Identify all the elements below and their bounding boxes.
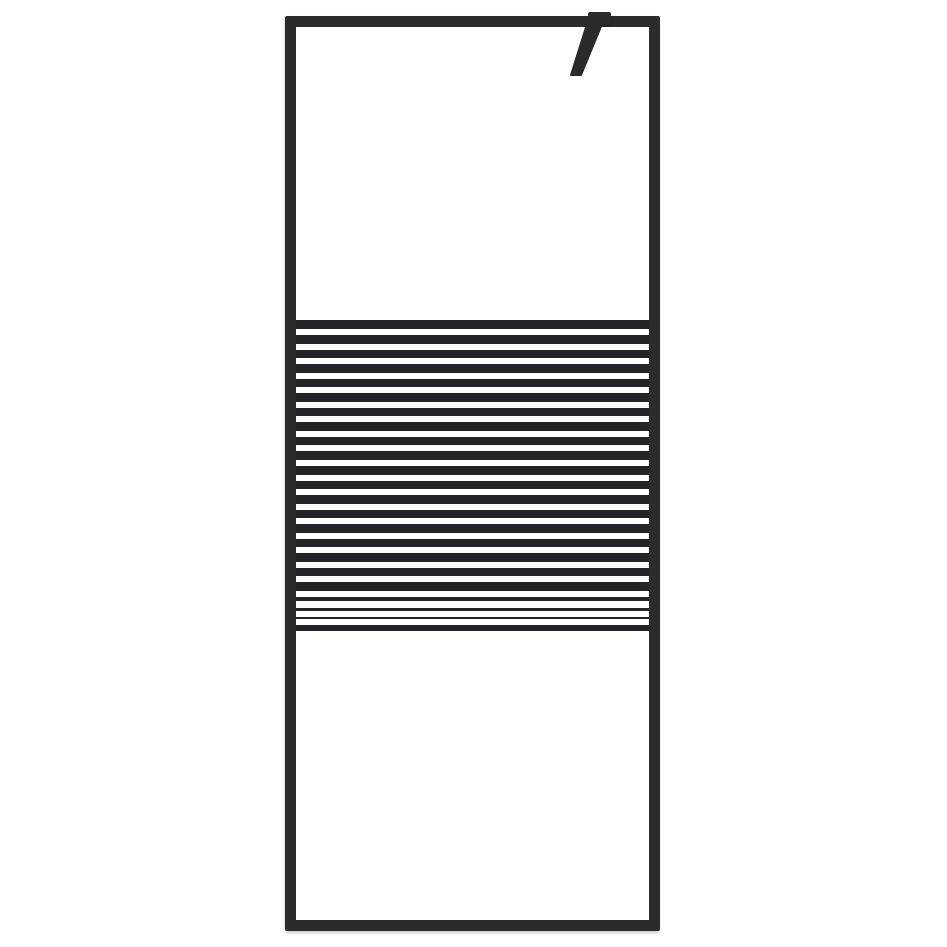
support-arm-clamp	[588, 12, 611, 25]
shower-screen-frame	[285, 16, 660, 931]
product-photo	[0, 0, 947, 947]
